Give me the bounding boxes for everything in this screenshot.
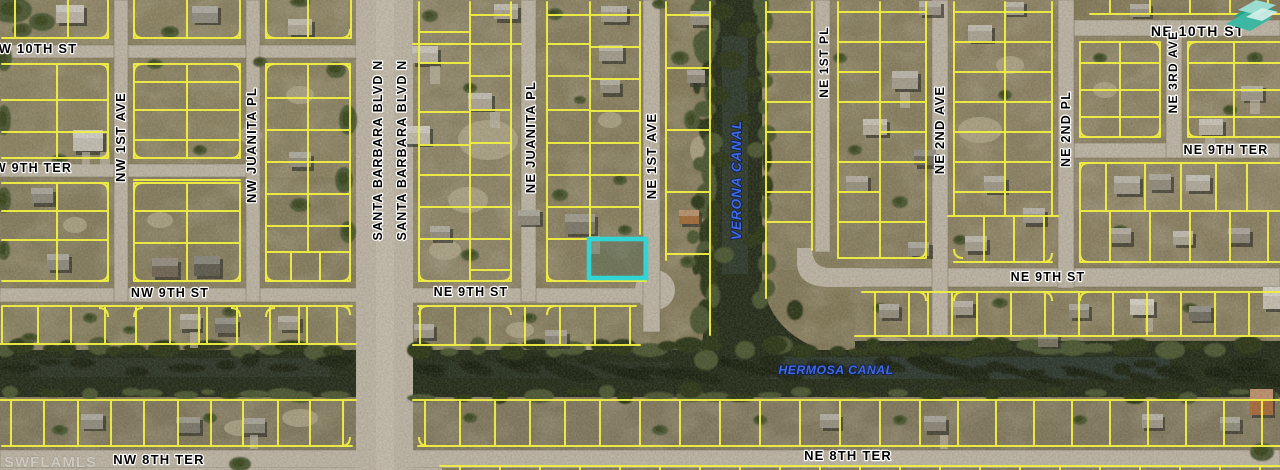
svg-text:NW JUANITA PL: NW JUANITA PL	[244, 87, 259, 203]
svg-text:NW 9TH ST: NW 9TH ST	[131, 286, 209, 300]
svg-text:HERMOSA CANAL: HERMOSA CANAL	[778, 363, 893, 377]
svg-text:NW 8TH TER: NW 8TH TER	[113, 452, 204, 467]
svg-text:NE 2ND PL: NE 2ND PL	[1059, 91, 1073, 167]
svg-text:NE 9TH ST: NE 9TH ST	[1011, 270, 1086, 284]
svg-text:NW 1ST AVE: NW 1ST AVE	[113, 92, 128, 182]
svg-text:NE JUANITA PL: NE JUANITA PL	[523, 81, 538, 193]
svg-text:NE 1ST AVE: NE 1ST AVE	[644, 113, 659, 199]
svg-text:SANTA BARBARA BLVD N: SANTA BARBARA BLVD N	[371, 60, 385, 241]
svg-text:NE 3RD AVE: NE 3RD AVE	[1166, 31, 1180, 114]
svg-text:NE 8TH TER: NE 8TH TER	[804, 448, 892, 463]
svg-text:SANTA BARBARA BLVD N: SANTA BARBARA BLVD N	[395, 60, 409, 241]
svg-text:VERONA CANAL: VERONA CANAL	[729, 120, 744, 240]
svg-text:W 9TH TER: W 9TH TER	[0, 161, 72, 175]
svg-text:NE 9TH TER: NE 9TH TER	[1184, 143, 1269, 157]
svg-text:NE 2ND AVE: NE 2ND AVE	[932, 86, 947, 175]
svg-text:NE 1ST PL: NE 1ST PL	[817, 26, 831, 97]
svg-text:SWFLAMLS: SWFLAMLS	[4, 454, 97, 470]
svg-text:NE 9TH ST: NE 9TH ST	[434, 285, 509, 299]
svg-text:W 10TH ST: W 10TH ST	[0, 41, 77, 56]
